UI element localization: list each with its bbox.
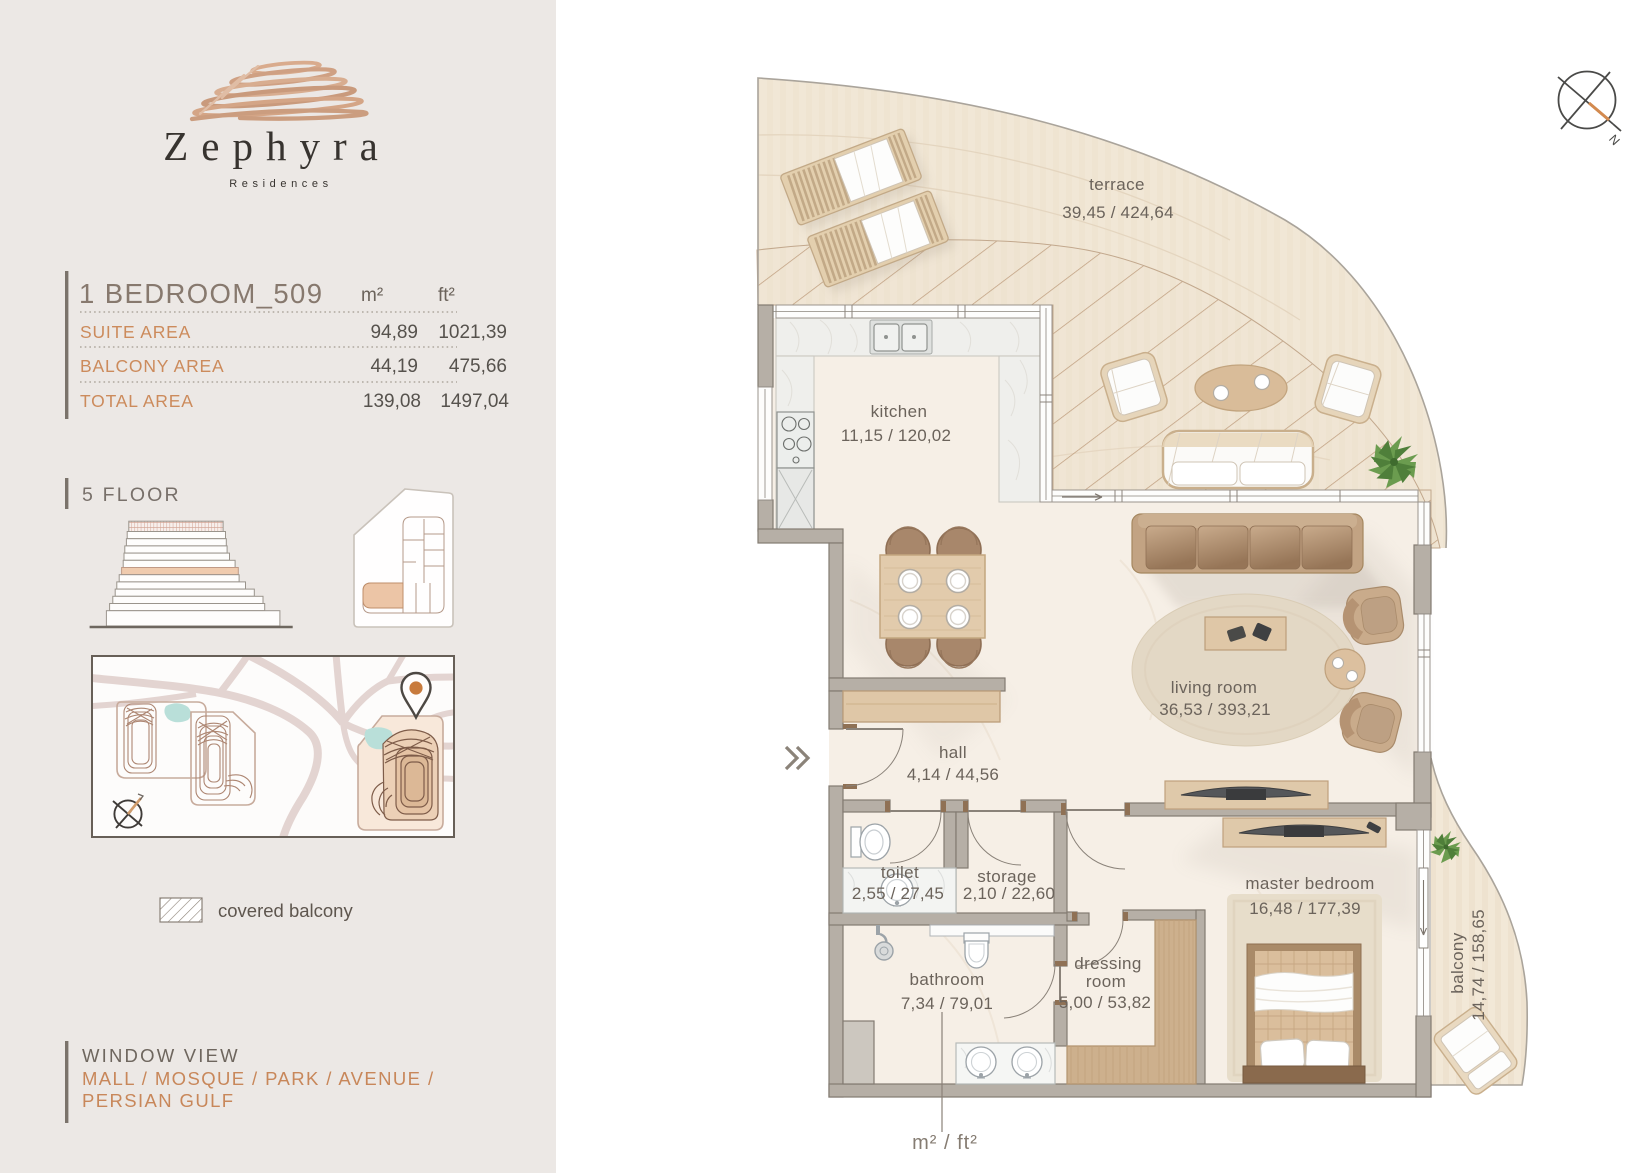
svg-text:ft²: ft² — [438, 285, 455, 306]
svg-text:BALCONY AREA: BALCONY AREA — [80, 356, 224, 376]
svg-text:14,74 / 158,65: 14,74 / 158,65 — [1469, 909, 1488, 1021]
svg-text:SUITE AREA: SUITE AREA — [80, 322, 191, 342]
svg-text:Residences: Residences — [229, 178, 332, 190]
svg-text:WINDOW VIEW: WINDOW VIEW — [82, 1045, 240, 1066]
svg-text:TOTAL AREA: TOTAL AREA — [80, 391, 194, 411]
svg-text:1021,39: 1021,39 — [438, 322, 507, 343]
svg-text:7,34 / 79,01: 7,34 / 79,01 — [901, 994, 993, 1013]
svg-text:1 BEDROOM_509: 1 BEDROOM_509 — [79, 278, 323, 309]
svg-text:kitchen: kitchen — [871, 402, 928, 421]
svg-text:139,08: 139,08 — [363, 391, 421, 412]
svg-text:terrace: terrace — [1089, 175, 1145, 194]
svg-text:Zephyra: Zephyra — [163, 123, 391, 169]
svg-text:room: room — [1086, 972, 1126, 991]
svg-text:11,15 / 120,02: 11,15 / 120,02 — [841, 426, 951, 445]
svg-text:5,00 / 53,82: 5,00 / 53,82 — [1059, 993, 1151, 1012]
svg-text:MALL / MOSQUE / PARK / AVENUE: MALL / MOSQUE / PARK / AVENUE / — [82, 1068, 435, 1089]
svg-text:39,45 / 424,64: 39,45 / 424,64 — [1062, 203, 1174, 222]
svg-text:m²: m² — [361, 285, 383, 306]
svg-text:2,10 / 22,60: 2,10 / 22,60 — [963, 884, 1055, 903]
svg-text:1497,04: 1497,04 — [440, 391, 509, 412]
svg-text:4,14 / 44,56: 4,14 / 44,56 — [907, 765, 999, 784]
svg-text:2,55 / 27,45: 2,55 / 27,45 — [852, 884, 944, 903]
svg-text:dressing: dressing — [1074, 954, 1141, 973]
svg-text:living room: living room — [1171, 678, 1258, 697]
svg-text:475,66: 475,66 — [449, 356, 507, 377]
svg-text:covered balcony: covered balcony — [218, 900, 353, 921]
svg-text:hall: hall — [939, 743, 967, 762]
svg-text:44,19: 44,19 — [370, 356, 418, 377]
svg-text:m² / ft²: m² / ft² — [912, 1132, 978, 1154]
svg-text:16,48 / 177,39: 16,48 / 177,39 — [1249, 899, 1361, 918]
svg-text:bathroom: bathroom — [909, 970, 984, 989]
svg-text:94,89: 94,89 — [370, 322, 418, 343]
svg-text:balcony: balcony — [1448, 932, 1467, 993]
svg-text:toilet: toilet — [881, 863, 919, 882]
svg-text:36,53 / 393,21: 36,53 / 393,21 — [1159, 700, 1271, 719]
svg-text:master bedroom: master bedroom — [1245, 874, 1374, 893]
svg-text:5 FLOOR: 5 FLOOR — [82, 484, 181, 506]
svg-text:PERSIAN GULF: PERSIAN GULF — [82, 1090, 235, 1111]
